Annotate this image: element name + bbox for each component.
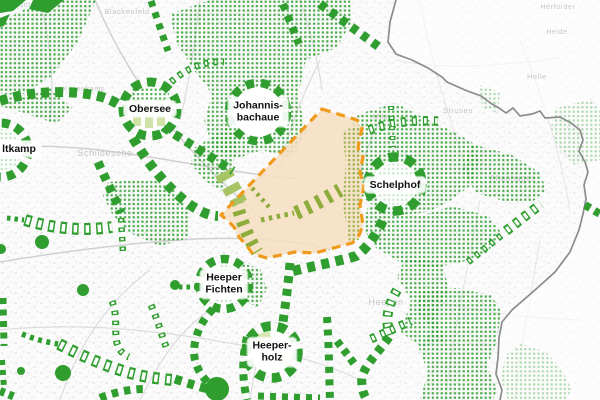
- background-map-label: Herforder: [541, 4, 576, 11]
- background-map-label: Strusen: [443, 106, 473, 115]
- map-graphics: sendorfBlackenfeldKusenkampSchildescheMi…: [0, 0, 600, 400]
- map-canvas[interactable]: sendorfBlackenfeldKusenkampSchildescheMi…: [0, 0, 600, 400]
- background-map-label: Schildesche: [77, 148, 132, 158]
- background-map-label: Heide: [546, 29, 567, 36]
- background-map-label: Helle: [527, 72, 547, 81]
- ring-obersee: [123, 82, 177, 136]
- background-map-label: Blackenfeld: [104, 7, 149, 16]
- ring-johannisbachaue: [229, 83, 287, 141]
